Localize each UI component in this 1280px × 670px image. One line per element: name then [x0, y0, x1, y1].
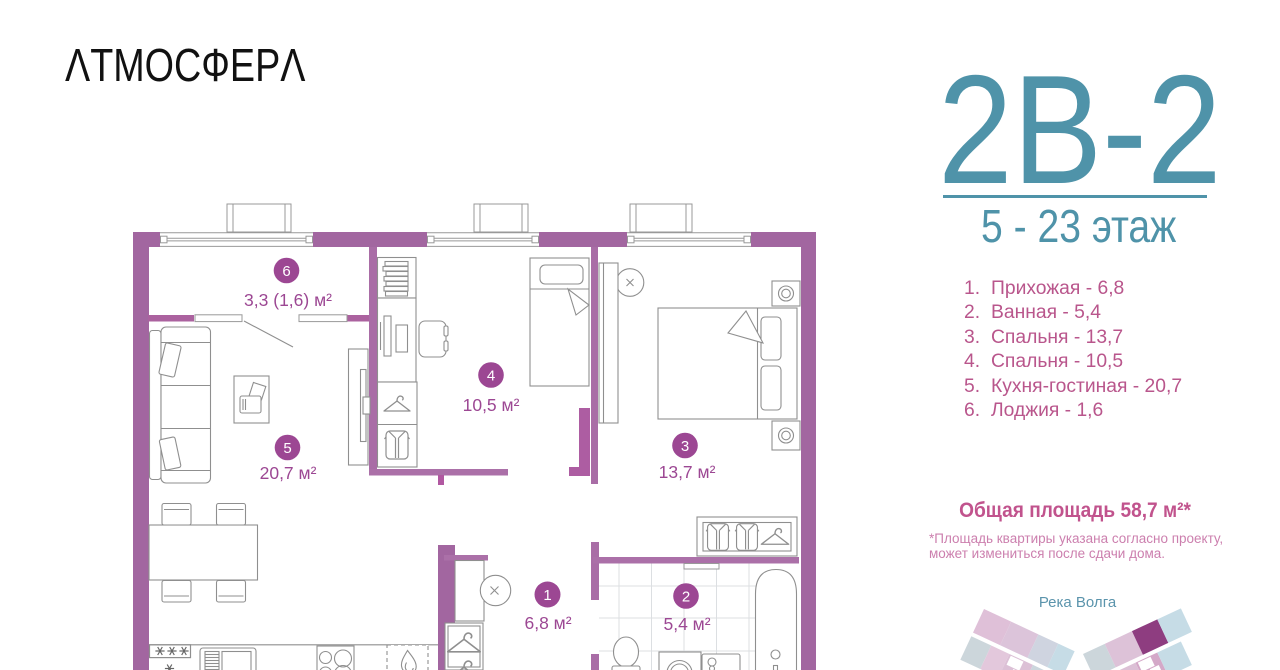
svg-text:2: 2 — [682, 589, 690, 606]
svg-text:6: 6 — [282, 263, 290, 280]
svg-text:3: 3 — [681, 438, 689, 455]
svg-text:5,4 м²: 5,4 м² — [663, 614, 710, 634]
svg-text:1: 1 — [543, 587, 551, 604]
svg-text:5: 5 — [283, 440, 291, 457]
svg-text:10,5 м²: 10,5 м² — [463, 395, 520, 415]
svg-text:6,8 м²: 6,8 м² — [524, 613, 571, 633]
svg-text:4: 4 — [487, 368, 495, 385]
svg-text:3,3 (1,6) м²: 3,3 (1,6) м² — [244, 290, 332, 310]
svg-text:20,7 м²: 20,7 м² — [260, 463, 317, 483]
svg-text:13,7 м²: 13,7 м² — [659, 462, 716, 482]
